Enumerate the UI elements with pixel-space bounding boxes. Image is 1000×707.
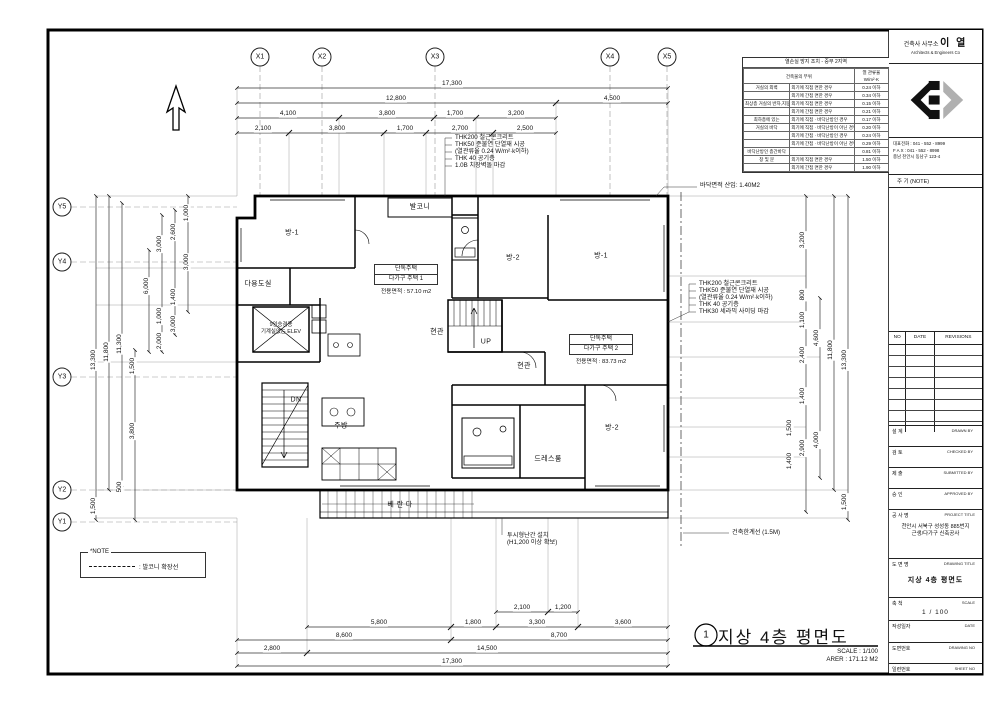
insulation-cond-cell: 외기에 직접 · 바닥난방인 경우: [790, 116, 854, 124]
insulation-cond-cell: 외기에 직접 면한 경우: [790, 100, 854, 108]
grid-bubble: Y5: [53, 198, 72, 217]
scale-label-kr: 축 척: [892, 600, 903, 607]
dimension-label: 2,400: [800, 346, 807, 364]
wall-note-line: THK30 세라믹 사이딩 마감: [699, 308, 773, 315]
revisions-no-header: NO: [889, 332, 906, 344]
firm-subtitle: Architects & Engineers Co: [889, 50, 982, 55]
revisions-rows: [889, 345, 982, 426]
dimension-label: 4,100: [279, 111, 297, 118]
insulation-cond-cell: 외기에 직접 면한 경우: [790, 84, 854, 92]
insulation-table: 열손실 방지 조치 - 중부 2지역 건축물의 부위 열 관류율 W/m²·K …: [742, 57, 890, 173]
dimension-label: 1,100: [800, 311, 807, 329]
revisions-label-header: REVISIONS: [935, 332, 982, 344]
drawing-scale-text: SCALE : 1/100: [837, 648, 878, 655]
el-logo-icon: [907, 78, 965, 122]
dimension-label: 2,000: [157, 332, 164, 350]
dimension-label: 17,300: [441, 81, 463, 88]
insulation-part-cell: 최하층에 있는: [744, 116, 790, 124]
dimension-label: 8,700: [550, 633, 568, 640]
grid-bubble: X2: [313, 48, 332, 67]
grid-bubble: X4: [601, 48, 620, 67]
revision-row: [889, 345, 982, 356]
signature-label-en: CHECKED BY: [947, 449, 979, 454]
grid-bubble: Y4: [53, 253, 72, 272]
elevator-label-line2: 기계실없는 ELEV: [261, 329, 301, 336]
insulation-part-cell: [744, 108, 790, 116]
drawing-no-label-en: DRAWING NO: [949, 645, 979, 652]
firm-contact: 대표전화 : 041 - 552 - 8999 F A X : 041 - 55…: [889, 138, 982, 175]
insulation-header-u: 열 관류율 W/m²·K: [854, 69, 888, 84]
signature-row: 제 출 SUBMITTED BY: [889, 468, 982, 489]
grid-bubble: Y1: [53, 513, 72, 532]
dimension-label: 2,800: [263, 646, 281, 653]
insulation-cond-cell: 외기에 간접 면한 경우: [790, 92, 854, 100]
insulation-table-row: 외기에 간접 · 바닥난방인 경우 0.24 이하: [744, 132, 889, 140]
dimension-label: 3,800: [328, 126, 346, 133]
insulation-cond-cell: 외기에 간접 면한 경우: [790, 164, 854, 172]
dimension-label: 13,300: [91, 349, 98, 371]
drawing-label-kr: 도 면 명: [892, 561, 909, 568]
note-section-header: 주 기 (NOTE): [889, 175, 982, 189]
insulation-table-row: 외기에 간접 면한 경우 0.21 이하: [744, 108, 889, 116]
insulation-part-cell: 창 및 문: [744, 156, 790, 164]
dimension-label: 800: [800, 289, 807, 302]
room-label: 주방: [334, 423, 348, 430]
insulation-table-row: 외기에 간접 면한 경우 1.90 이하: [744, 164, 889, 172]
drawing-sheet: X1X2X3X4X5 Y5Y4Y3Y2Y1 17,30012,8004,5004…: [0, 0, 1000, 707]
dimension-label: 5,800: [370, 620, 388, 627]
dimension-label: 1,400: [800, 387, 807, 405]
title-block: 건축사 사무소 이 열 Architects & Engineers Co 대표…: [889, 30, 982, 674]
dimension-label: 2,900: [800, 439, 807, 457]
sheet-no-section: 일련번호 SHEET NO: [889, 664, 982, 674]
wall-note-line: THK50 준불연 단열재 시공: [455, 141, 529, 148]
insulation-table-row: 외기에 간접 · 바닥난방이 아닌 경우 0.29 이하: [744, 140, 889, 148]
insulation-part-cell: [744, 132, 790, 140]
insulation-table-row: 최상층 거실의 반자,지붕 외기에 직접 면한 경우 0.15 이하: [744, 100, 889, 108]
grid-bubble: X1: [251, 48, 270, 67]
date-label-kr: 작성일자: [892, 623, 910, 630]
drawing-title-text: 지상 4층 평면도: [889, 575, 982, 585]
insulation-value-cell: 0.17 이하: [854, 116, 888, 124]
insulation-cond-cell: 외기에 간접 면한 경우: [790, 108, 854, 116]
grid-bubble: Y3: [53, 368, 72, 387]
legend-text: : 발코니 확장선: [139, 562, 178, 571]
dimension-label: 3,000: [157, 235, 164, 253]
firm-logo: [889, 64, 982, 138]
dimension-label: 14,500: [476, 646, 498, 653]
room-label: 드레스룸: [534, 456, 561, 463]
unit1-name: 다가구 주택 1: [374, 275, 438, 285]
dimension-label: 3,200: [507, 111, 525, 118]
railing-note: 투시형난간 설치(H1,200 이상 확보): [507, 532, 557, 546]
signature-label-en: APPROVED BY: [944, 491, 979, 496]
drawing-area-text: ARER : 171.12 M2: [826, 656, 878, 663]
grid-bubble: X5: [658, 48, 677, 67]
date-label-en: DATE: [965, 623, 979, 630]
insulation-part-cell: [744, 92, 790, 100]
elevator-label: 9인승겸용 기계실없는 ELEV: [261, 322, 301, 335]
firm-header: 건축사 사무소 이 열 Architects & Engineers Co: [889, 30, 982, 64]
insulation-table-title: 열손실 방지 조치 - 중부 2지역: [743, 58, 889, 68]
room-label: UP: [481, 339, 492, 346]
insulation-part-cell: 거실의 바닥: [744, 124, 790, 132]
floor-area-note: 바닥면적 산입: 1.40M2: [700, 182, 760, 189]
dimension-label: 11,800: [828, 339, 835, 360]
firm-prefix: 건축사 사무소: [904, 42, 939, 48]
dimension-label: 2,500: [516, 126, 534, 133]
dimension-label: 11,300: [117, 333, 124, 354]
insulation-value-cell: 1.50 이하: [854, 156, 888, 164]
scale-label-en: SCALE: [962, 600, 979, 607]
dimension-label: 4,500: [603, 96, 621, 103]
grid-bubble: X3: [426, 48, 445, 67]
revision-row: [889, 378, 982, 389]
dimension-label: 500: [117, 481, 124, 494]
dimension-label: 1,500: [787, 419, 794, 437]
unit2-info-box: 단독주택 다가구 주택 2 전용면적 : 83.73 m2: [569, 334, 633, 365]
wall-note-right: THK200 철근콘크리트THK50 준불연 단열재 시공(열관류율 0.24 …: [699, 280, 773, 315]
insulation-value-cell: 0.34 이하: [854, 92, 888, 100]
insulation-table-row: 거실의 바닥 외기에 직접 · 바닥난방이 아닌 경우 0.20 이하: [744, 124, 889, 132]
insulation-part-cell: 거실의 외벽: [744, 84, 790, 92]
dimension-label: 8,600: [335, 633, 353, 640]
date-section: 작성일자 DATE: [889, 621, 982, 643]
dimension-label: 1,000: [157, 307, 164, 325]
dimension-label: 6,000: [144, 277, 151, 295]
insulation-cond-cell: 외기에 간접 · 바닥난방이 아닌 경우: [790, 140, 854, 148]
room-label: 베 란 다: [387, 502, 412, 509]
dimension-label: 1,000: [184, 204, 191, 222]
revisions-date-header: DATE: [906, 332, 934, 344]
drawing-main-title: 지상 4층 평면도: [718, 623, 849, 648]
unit2-type: 단독주택: [569, 334, 633, 345]
drawing-no-label-kr: 도면번호: [892, 645, 910, 652]
dimension-label: 2,600: [171, 223, 178, 241]
unit1-type: 단독주택: [374, 264, 438, 275]
unit1-info-box: 단독주택 다가구 주택 1 전용면적 : 57.10 m2: [374, 264, 438, 295]
revision-row: [889, 400, 982, 411]
room-label: 발코니: [410, 204, 431, 211]
unit2-area: 전용면적 : 83.73 m2: [569, 356, 633, 365]
dimension-label: 1,400: [787, 452, 794, 470]
dimension-label: 3,000: [171, 315, 178, 333]
insulation-value-cell: 1.90 이하: [854, 164, 888, 172]
insulation-value-cell: 0.24 이하: [854, 84, 888, 92]
unit1-area: 전용면적 : 57.10 m2: [374, 286, 438, 295]
note-section-body: [889, 188, 982, 331]
dimension-label: 1,500: [130, 357, 137, 375]
signature-label-kr: 승 인: [892, 491, 903, 498]
insulation-header-part: 건축물의 부위: [744, 69, 855, 84]
revision-row: [889, 356, 982, 367]
insulation-part-cell: [744, 140, 790, 148]
signature-row: 검 토 CHECKED BY: [889, 447, 982, 468]
room-label: 방-1: [594, 253, 608, 260]
dimension-label: 3,800: [130, 422, 137, 440]
drawing-no-section: 도면번호 DRAWING NO: [889, 643, 982, 664]
room-label: 다용도실: [244, 281, 271, 288]
scale-value: 1 / 100: [889, 609, 982, 616]
signature-rows: 설 계 DRAWN BY 검 토 CHECKED BY 제 출 SUBMITTE…: [889, 426, 982, 510]
dimension-label: 2,100: [254, 126, 272, 133]
dimension-label: 13,300: [842, 349, 849, 371]
drawing-label-en: DRAWING TITLE: [944, 561, 979, 568]
insulation-value-cell: 0.15 이하: [854, 100, 888, 108]
wall-note-line: THK50 준불연 단열재 시공: [699, 287, 773, 294]
grid-bubble: Y2: [53, 481, 72, 500]
dimension-label: 11,800: [104, 341, 111, 362]
dimension-label: 4,600: [814, 329, 821, 347]
room-label: 현관: [430, 329, 444, 336]
signature-label-kr: 제 출: [892, 470, 903, 477]
revision-row: [889, 422, 982, 432]
revision-row: [889, 389, 982, 400]
sheet-no-label-kr: 일련번호: [892, 666, 910, 673]
insulation-cond-cell: [790, 148, 854, 156]
insulation-value-cell: 0.24 이하: [854, 132, 888, 140]
wall-note-line: THK200 철근콘크리트: [699, 280, 773, 287]
insulation-table-row: 최하층에 있는 외기에 직접 · 바닥난방인 경우 0.17 이하: [744, 116, 889, 124]
insulation-header-u1: 열 관류율: [856, 69, 887, 76]
unit2-name: 다가구 주택 2: [569, 345, 633, 355]
project-line2: 근생/다가구 신축공사: [889, 531, 982, 539]
insulation-value-cell: 0.20 이하: [854, 124, 888, 132]
dimension-label: 2,100: [513, 605, 531, 612]
room-label: 현관: [517, 363, 531, 370]
insulation-part-cell: 최상층 거실의 반자,지붕: [744, 100, 790, 108]
insulation-value-cell: 0.29 이하: [854, 140, 888, 148]
room-label: 방-2: [506, 255, 520, 262]
revision-row: [889, 367, 982, 378]
railing-note-line: (H1,200 이상 확보): [507, 539, 557, 546]
room-label: 방-1: [285, 230, 299, 237]
dimension-label: 3,000: [184, 253, 191, 271]
insulation-table-row: 창 및 문 외기에 직접 면한 경우 1.50 이하: [744, 156, 889, 164]
legend-note-box: *NOTE : 발코니 확장선: [80, 552, 206, 578]
dimension-label: 1,200: [554, 605, 572, 612]
insulation-header-u2: W/m²·K: [856, 76, 887, 83]
scale-section: 축 척 SCALE 1 / 100: [889, 598, 982, 620]
insulation-table-row: 바닥난방인 층간바닥 0.81 이하: [744, 148, 889, 156]
drawing-number-bubble: 1: [703, 630, 709, 641]
dimension-label: 2,700: [451, 126, 469, 133]
insulation-value-cell: 0.21 이하: [854, 108, 888, 116]
project-label-kr: 공 사 명: [892, 512, 909, 519]
balcony-extension-dash-swatch: [89, 566, 135, 567]
insulation-cond-cell: 외기에 간접 · 바닥난방인 경우: [790, 132, 854, 140]
signature-label-kr: 검 토: [892, 449, 903, 456]
wall-note-line: (열관류율 0.24 W/m²·k이하): [699, 294, 773, 301]
dimension-label: 3,200: [800, 231, 807, 249]
wall-note-line: (열관류율 0.24 W/m²·k이하): [455, 148, 529, 155]
insulation-cond-cell: 외기에 직접 면한 경우: [790, 156, 854, 164]
dimension-label: 3,800: [378, 111, 396, 118]
dimension-label: 17,300: [441, 659, 463, 666]
dimension-label: 1,700: [446, 111, 464, 118]
dimension-label: 12,800: [385, 96, 407, 103]
project-title-section: 공 사 명 PROJECT TITLE 천안시 서북구 성성동 885번지 근생…: [889, 510, 982, 559]
firm-name: 이 열: [940, 38, 967, 49]
dimension-label: 1,700: [396, 126, 414, 133]
dimension-label: 3,600: [614, 620, 632, 627]
revisions-header: NO DATE REVISIONS: [889, 332, 982, 345]
sheet-no-label-en: SHEET NO: [955, 666, 979, 673]
legend-title: *NOTE: [88, 549, 111, 555]
dimension-label: 1,400: [171, 288, 178, 306]
insulation-part-cell: [744, 164, 790, 172]
dimension-label: 4,000: [814, 431, 821, 449]
wall-note-line: 1.0B 치장벽돌 마감: [455, 162, 529, 169]
dimension-label: 1,500: [91, 497, 98, 515]
insulation-table-row: 거실의 외벽 외기에 직접 면한 경우 0.24 이하: [744, 84, 889, 92]
insulation-cond-cell: 외기에 직접 · 바닥난방이 아닌 경우: [790, 124, 854, 132]
railing-note-line: 투시형난간 설치: [507, 532, 557, 539]
insulation-part-cell: 바닥난방인 층간바닥: [744, 148, 790, 156]
signature-row: 승 인 APPROVED BY: [889, 489, 982, 510]
building-limit-note: 건축한계선 (1.5M): [732, 529, 780, 536]
dimension-label: 3,300: [528, 620, 546, 627]
room-label: 방-2: [605, 425, 619, 432]
wall-note-left: THK200 철근콘크리트THK50 준불연 단열재 시공(열관류율 0.24 …: [455, 134, 529, 169]
wall-note-line: THK200 철근콘크리트: [455, 134, 529, 141]
signature-label-en: SUBMITTED BY: [943, 470, 979, 475]
drawing-title-section: 도 면 명 DRAWING TITLE 지상 4층 평면도: [889, 559, 982, 599]
room-label: DN: [291, 397, 302, 404]
wall-note-line: THK 40 공기층: [455, 155, 529, 162]
revision-row: [889, 411, 982, 422]
dimension-label: 1,500: [842, 493, 849, 511]
insulation-value-cell: 0.81 이하: [854, 148, 888, 156]
insulation-table-row: 외기에 간접 면한 경우 0.34 이하: [744, 92, 889, 100]
project-label-en: PROJECT TITLE: [944, 512, 979, 519]
dimension-label: 1,800: [464, 620, 482, 627]
wall-note-line: THK 40 공기층: [699, 301, 773, 308]
firm-address: 충남 천안시 동남구 123-4: [893, 154, 978, 161]
